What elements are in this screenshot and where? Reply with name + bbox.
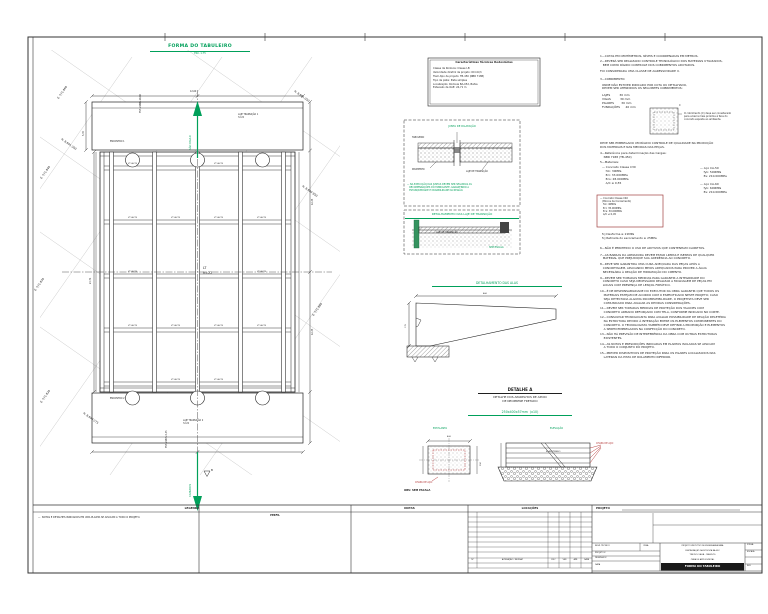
perfil-title: PERFIL	[199, 514, 351, 517]
locacoes-title: LOCAÇÕES	[468, 507, 592, 511]
stamp-line4: OBRA DE ARTE ESPECIAL	[661, 559, 744, 562]
dim-width: 12,60	[190, 91, 196, 94]
beam-label: VT 40/75	[128, 217, 137, 220]
label: 10—É DE RESPONSABILIDADE DO EXECUTOR DA …	[600, 290, 719, 306]
bottom-strip-lines	[33, 505, 762, 573]
joint-detail	[404, 120, 520, 206]
point-b-marker	[204, 471, 210, 477]
encontro1-label: ENCONTRO 1	[110, 141, 125, 144]
notas-title: NOTAS	[351, 507, 468, 511]
label: — Concreto Classe C30 fck: 30MPa Eci: 33…	[602, 166, 636, 186]
est-end-label: EST. 2187+5,35	[166, 430, 169, 448]
dim-span-r2: 12,35	[312, 329, 315, 335]
label: 3—COBRIMENTO:	[600, 78, 625, 82]
stamp-rev-label: REV	[747, 565, 751, 568]
beam-label: VT 40/75	[171, 325, 180, 328]
slab1-label: LAJE TRANSIÇÃO 1 h=22	[238, 114, 258, 120]
tech-box-lines: Classe da Rodovia: Classe I-BVelocidade …	[433, 67, 484, 90]
label: 14—AS NOTAS E PRESCRIÇÕES INDICADAS EM P…	[600, 343, 715, 351]
stamp-escala-label: ESCALA	[747, 551, 754, 554]
dim-span-r1: 12,35	[312, 199, 315, 205]
detail-a-plan-label: EM PLANTA	[433, 427, 447, 430]
tech-box-title: Características Técnicas Rodoviárias	[430, 61, 538, 65]
label: C	[679, 104, 681, 107]
label: 2—DEVERÁ SER REALIZADO CONTROLE TECNOLÓG…	[600, 60, 723, 68]
label: 12—CONSULTAR TECNOLOGISTA PARA AVALIAR P…	[600, 316, 726, 332]
rev-col-header: Nº	[468, 559, 477, 562]
joint-note: — NA EXECUÇÃO DAS JUNTAS DEVEM SER SEGUI…	[407, 183, 472, 192]
wing-wall-detail	[407, 294, 558, 362]
label: 7—AS BARRAS DA ARMADURA DEVEM ESTAR LIMP…	[600, 254, 714, 262]
cover-diagram	[650, 108, 682, 134]
beam-label: VT 40/75	[171, 379, 180, 382]
beam-label: VT 40/75	[257, 325, 266, 328]
panel-label: LT h=22	[203, 266, 212, 275]
elastomer-label: ELASTÔMERO	[546, 451, 560, 454]
stamp-line1: PROJETO EXECUTIVO DE ENGENHARIA PARA	[661, 545, 744, 548]
dim-slab-left: 5,35	[83, 131, 86, 136]
beam-label: VT 40/75	[257, 271, 266, 274]
detail-a-drawings	[419, 438, 601, 482]
direction-north-label: SÃO PAULO	[189, 135, 193, 150]
label: 8—DEVE SER GARANTIDA UMA CURA ADEQUADA D…	[600, 263, 707, 275]
beam-label: VT 40/75	[128, 325, 137, 328]
transition-no-scale: SEM ESCALA	[489, 246, 504, 249]
label: fcj Desforma ≥ 21MPa fcj Retirada do esc…	[602, 233, 657, 241]
steel-plate-leaders	[590, 445, 601, 463]
rev-col-header: DATA	[581, 559, 592, 562]
label: FOI CONSIDERADA UMA CLASSE DE AGRESSIVID…	[600, 70, 680, 74]
label: 6—NÃO É PERMITIDO O USO DE ADITIVOS QUE …	[600, 247, 705, 251]
label: — Concreto Classe C40 (Blocos de Coroame…	[600, 197, 631, 216]
detail-a-subtitle: DETALHE DOS APARELHOS DE APOIO DE NEOPRE…	[446, 396, 594, 404]
steel-plate-label-elev: CHAPA DE AÇO	[596, 442, 613, 445]
label: O cobrimento (C) deve ser considerado pa…	[684, 112, 731, 122]
detail-a-elev-label: ELEVAÇÃO	[550, 427, 563, 430]
steel-plate-label-plan: CHAPA DE AÇO	[415, 481, 432, 484]
stamp-crea-label: CREA	[643, 545, 648, 548]
stamp-desenhou-label: DESENHOU	[595, 557, 606, 560]
detail-a-size: 250x400x57mm (x10)	[468, 410, 572, 416]
rev-col-header: ALTERAÇÃO / REVISÃO	[477, 559, 548, 562]
stamp-line2: RESTAURAÇÃO DA RODOVIA BA-052	[661, 550, 744, 553]
beam-label: VT 40/75	[128, 163, 137, 166]
rev-col-header: FISC	[548, 559, 559, 562]
plan-scale: ESC. 1:75	[150, 52, 250, 55]
label: 15—PREVER DISPOSITIVOS DE PROTEÇÃO PARA …	[600, 352, 715, 360]
label: — Aço CA-50 fyk: 500MPa Es: 210.000MPa	[700, 167, 727, 179]
label: 11—DEVEM SER TOMADAS MEDIDAS DE PROTEÇÃO…	[600, 307, 720, 315]
transition-slab-label: LAJE DE TRANSIÇÃO	[436, 232, 458, 235]
detail-a-title: DETALHE A	[478, 387, 562, 394]
label: — Aço CA-60 fyk: 600MPa Es: 210.000MPa	[700, 183, 727, 195]
wing-dim-left: 175	[405, 324, 408, 328]
transition-title: DETALHAMENTO DAS LAJE DE TRANSIÇÃO	[405, 213, 519, 219]
stamp-sheet-title-bar: FORMA DO TABULEIRO	[661, 565, 744, 569]
label: DEVE SER EMPREGADO UM RÍGIDO CONTROLE DE…	[600, 142, 713, 150]
label: 4—Referência para determinação das Carga…	[600, 152, 666, 160]
detail-a-obs: OBS: SEM ESCALA	[404, 489, 430, 493]
label: LAJES 30 mm VIGAS 30 mm PILARES 30 mm FU…	[602, 94, 636, 110]
rev-col-header: APR	[570, 559, 581, 562]
label: 9—DEVEM SER TOMADAS MEDIDAS PARA GARANTI…	[600, 277, 712, 289]
stamp-data-label: DATA	[595, 564, 600, 567]
dim-span-left: 24,71	[90, 278, 93, 284]
detail-a-dim-h: 250	[480, 462, 483, 466]
tech-box-line: Extensão da OAE: 24,71 m	[433, 86, 484, 90]
legenda-note: — NOTAS E DETALHES INDICADOS EM UMA PLAN…	[38, 516, 140, 519]
wing-dim-top: 460	[450, 293, 520, 296]
joint-title: JUNTA DE DILATAÇÃO	[406, 125, 518, 129]
beam-label: VT 40/75	[214, 217, 223, 220]
beam-label: VT 40/75	[128, 271, 137, 274]
direction-south-label: CANUDOS	[189, 484, 193, 497]
joint-label-laje: LAJE DE TRANSIÇÃO	[466, 171, 488, 174]
beam-label: VT 40/75	[214, 325, 223, 328]
est-start-label: EST. 2188+10,06	[140, 94, 143, 113]
encontro2-label: ENCONTRO 2	[110, 398, 125, 401]
joint-label-pavimento: PAVIMENTO	[412, 169, 425, 172]
label: ONDE NÃO ESTIVER INDICADO POR COTA OU DE…	[602, 84, 687, 92]
label: 13—NÃO HÁ PREVISÃO DE INTERFERÊNCIA DA O…	[600, 333, 717, 341]
joint-label-tabuleiro: TABULEIRO	[412, 137, 424, 140]
rev-col-header: VER	[559, 559, 570, 562]
legenda-title: LEGENDA	[33, 507, 351, 511]
beam-label: VT 40/75	[257, 217, 266, 220]
projeto-title: PROJETO	[596, 507, 610, 511]
stamp-folha-label: FOLHA	[747, 544, 753, 547]
beam-label: VT 40/75	[171, 217, 180, 220]
wing-title: DETALHAMENTO DAS ALAS	[432, 281, 562, 287]
point-b-label: B	[211, 469, 213, 473]
beam-label: VT 40/75	[214, 379, 223, 382]
title-block-lines	[592, 510, 762, 571]
stamp-line3: TRECHO: UAUÁ - CANUDOS	[661, 554, 744, 557]
stamp-projetou-label: PROJETOU	[595, 552, 605, 555]
slab2-label: LAJE TRANSIÇÃO 2 h=22	[183, 420, 203, 426]
beam-label: VT 40/75	[214, 163, 223, 166]
drawing-sheet: FORMA DO TABULEIRO ESC. 1:75 Característ…	[0, 0, 768, 614]
stamp-resp-label: RESP. TÉCNICO	[595, 545, 610, 548]
detail-a-dim-w: 400	[434, 436, 464, 439]
